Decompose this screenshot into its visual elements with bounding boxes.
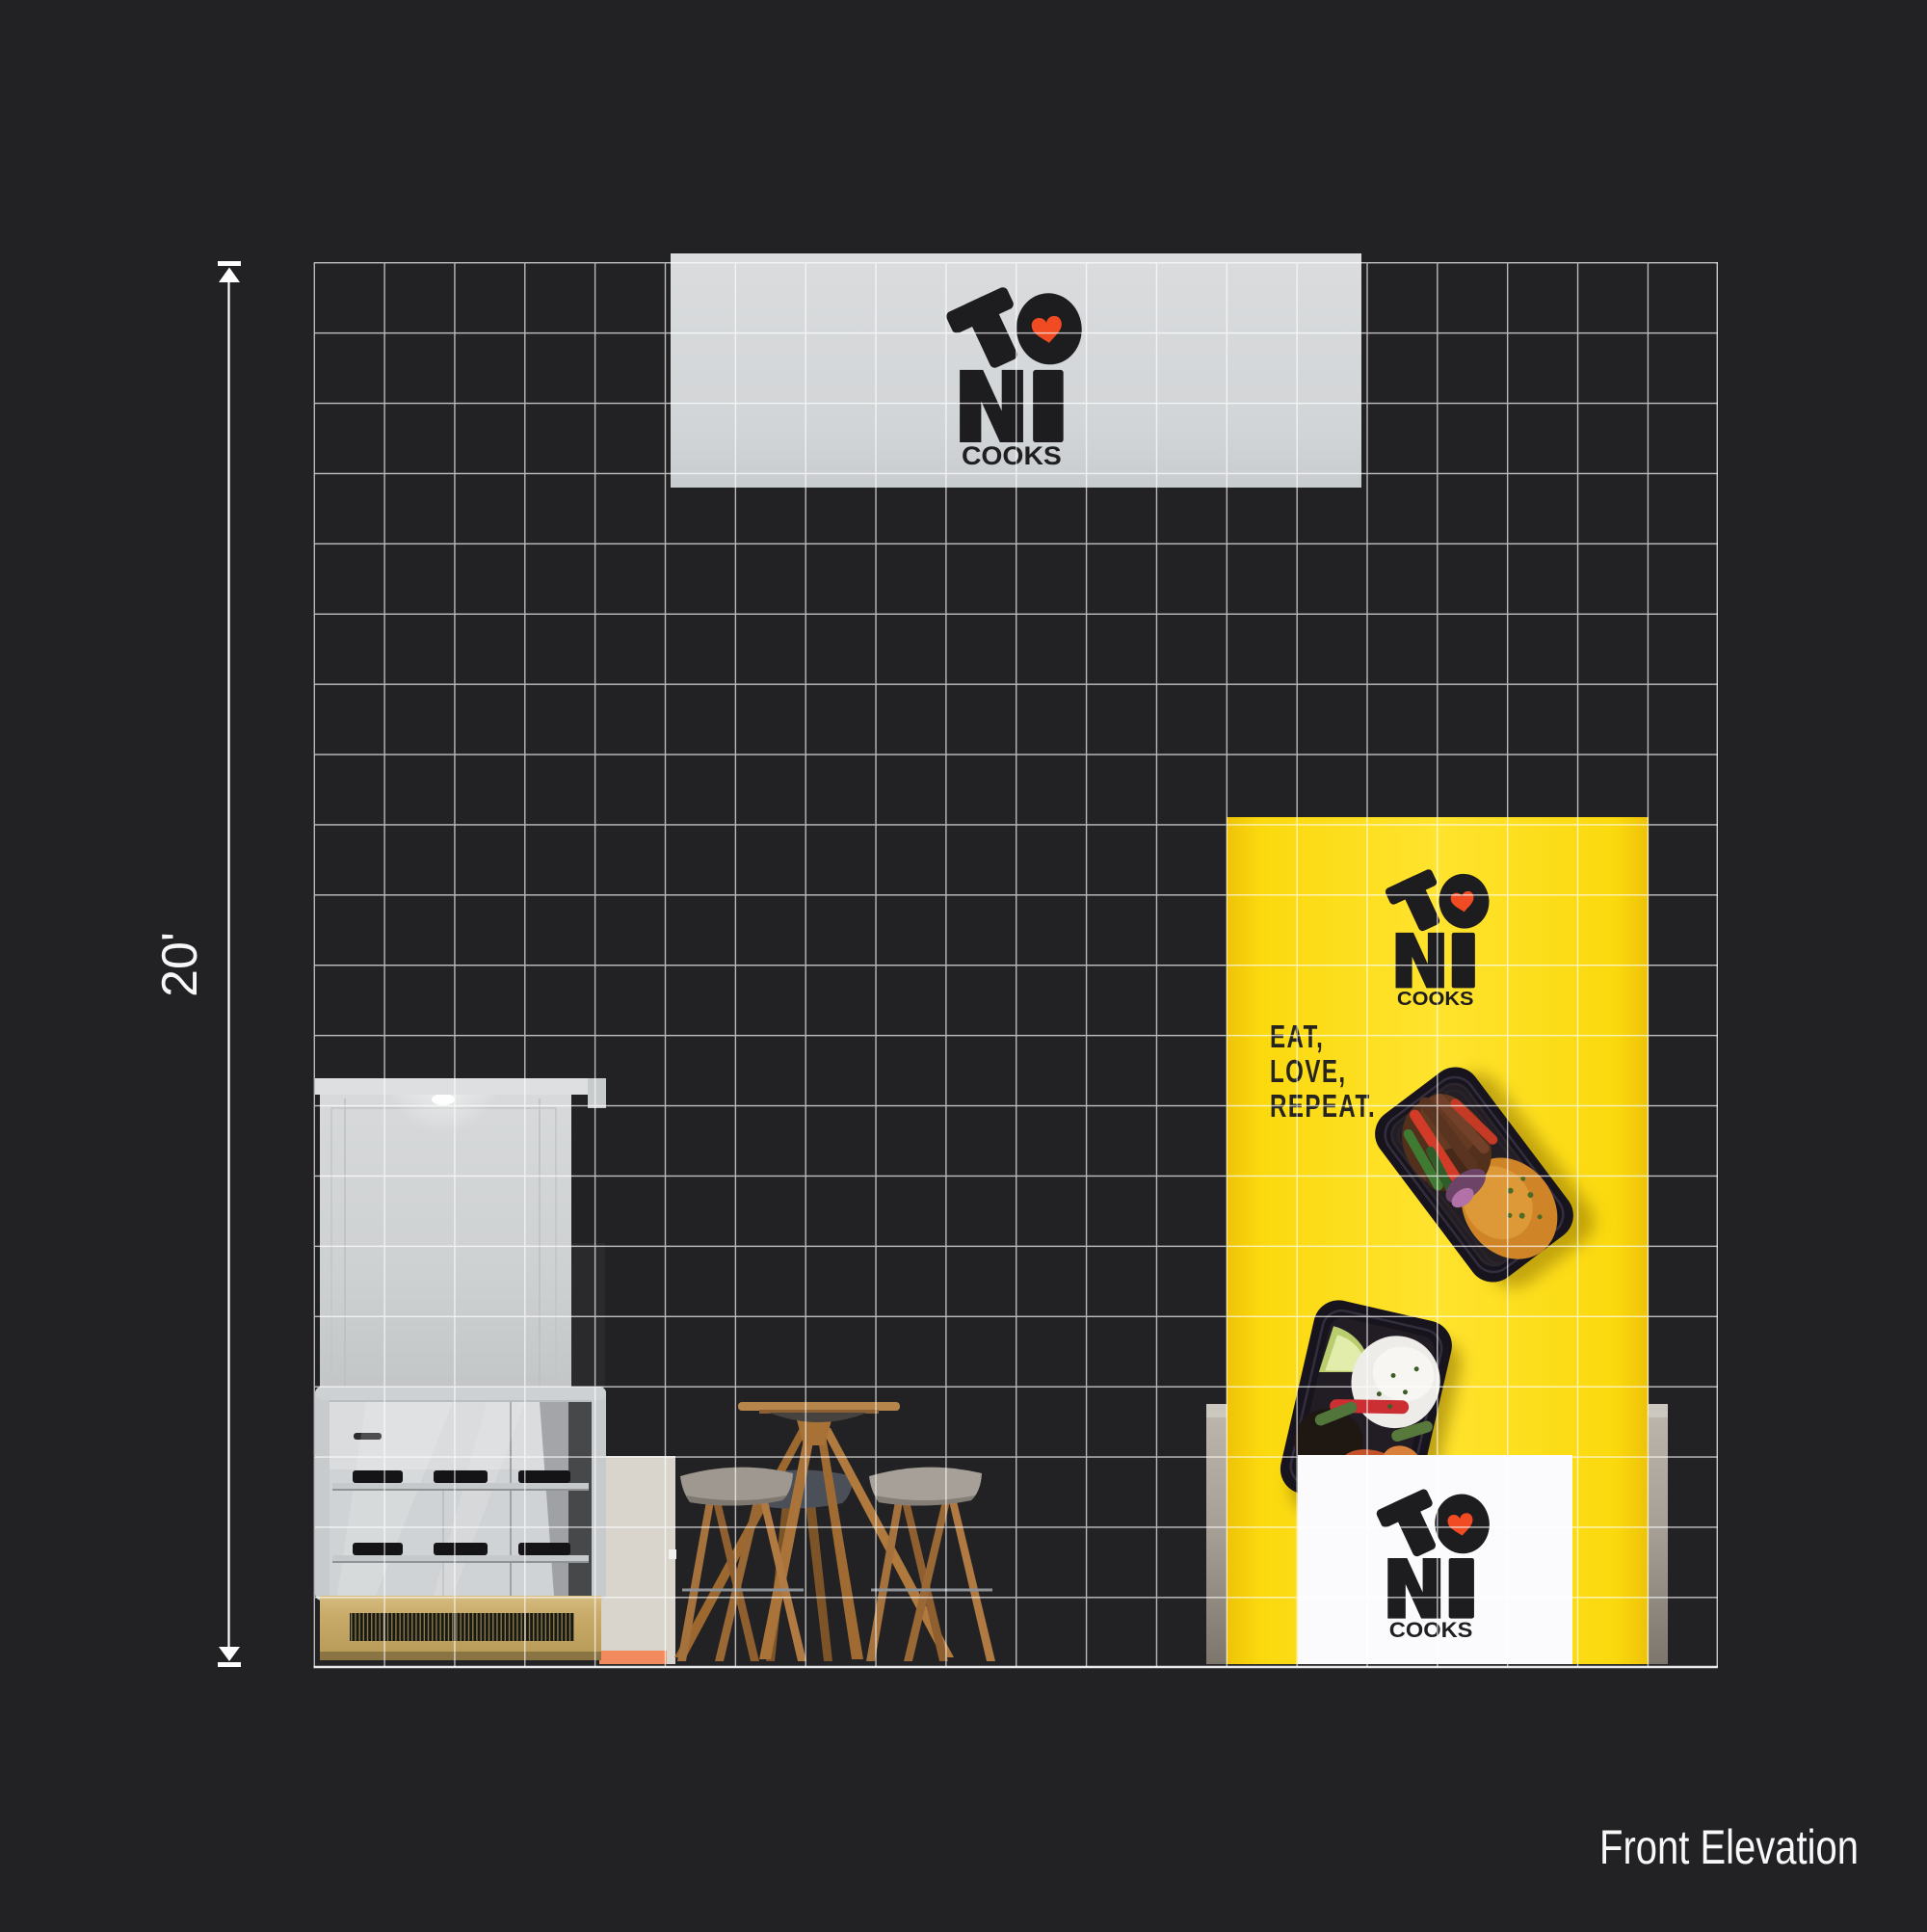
svg-text:Front Elevation: Front Elevation bbox=[1599, 1820, 1859, 1874]
svg-text:20': 20' bbox=[152, 932, 208, 997]
